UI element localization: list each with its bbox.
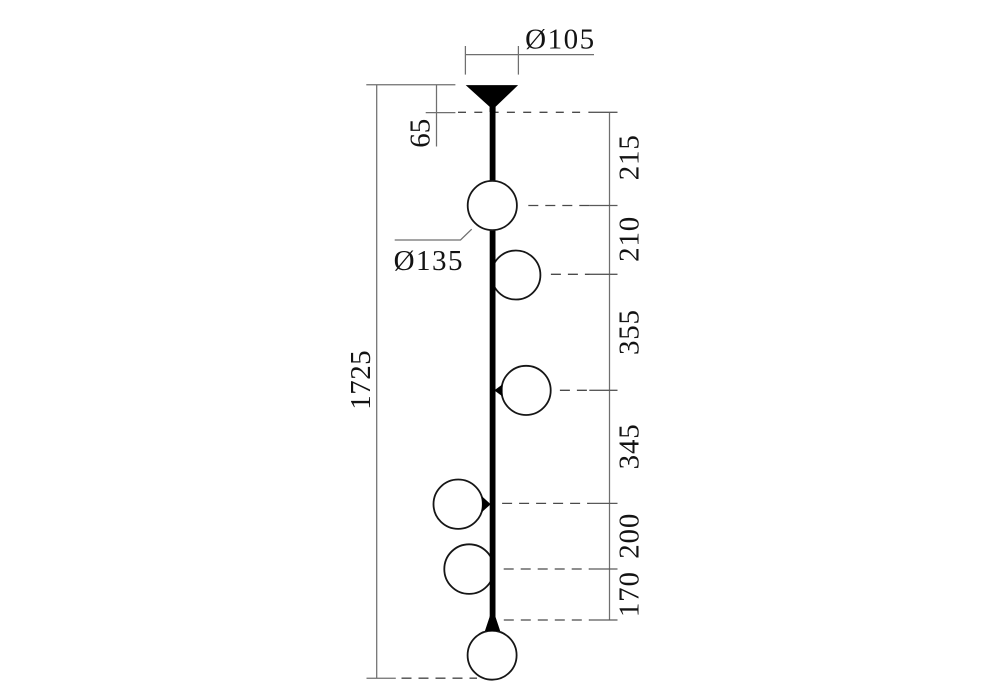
svg-text:200: 200 — [614, 513, 646, 559]
svg-text:170: 170 — [614, 571, 646, 617]
svg-text:1725: 1725 — [345, 350, 377, 410]
svg-text:345: 345 — [614, 423, 646, 469]
svg-text:210: 210 — [614, 216, 646, 262]
svg-text:65: 65 — [404, 119, 436, 148]
svg-text:Ø135: Ø135 — [394, 245, 464, 277]
svg-text:215: 215 — [614, 134, 646, 180]
svg-text:355: 355 — [614, 309, 646, 355]
svg-text:Ø105: Ø105 — [525, 24, 595, 56]
